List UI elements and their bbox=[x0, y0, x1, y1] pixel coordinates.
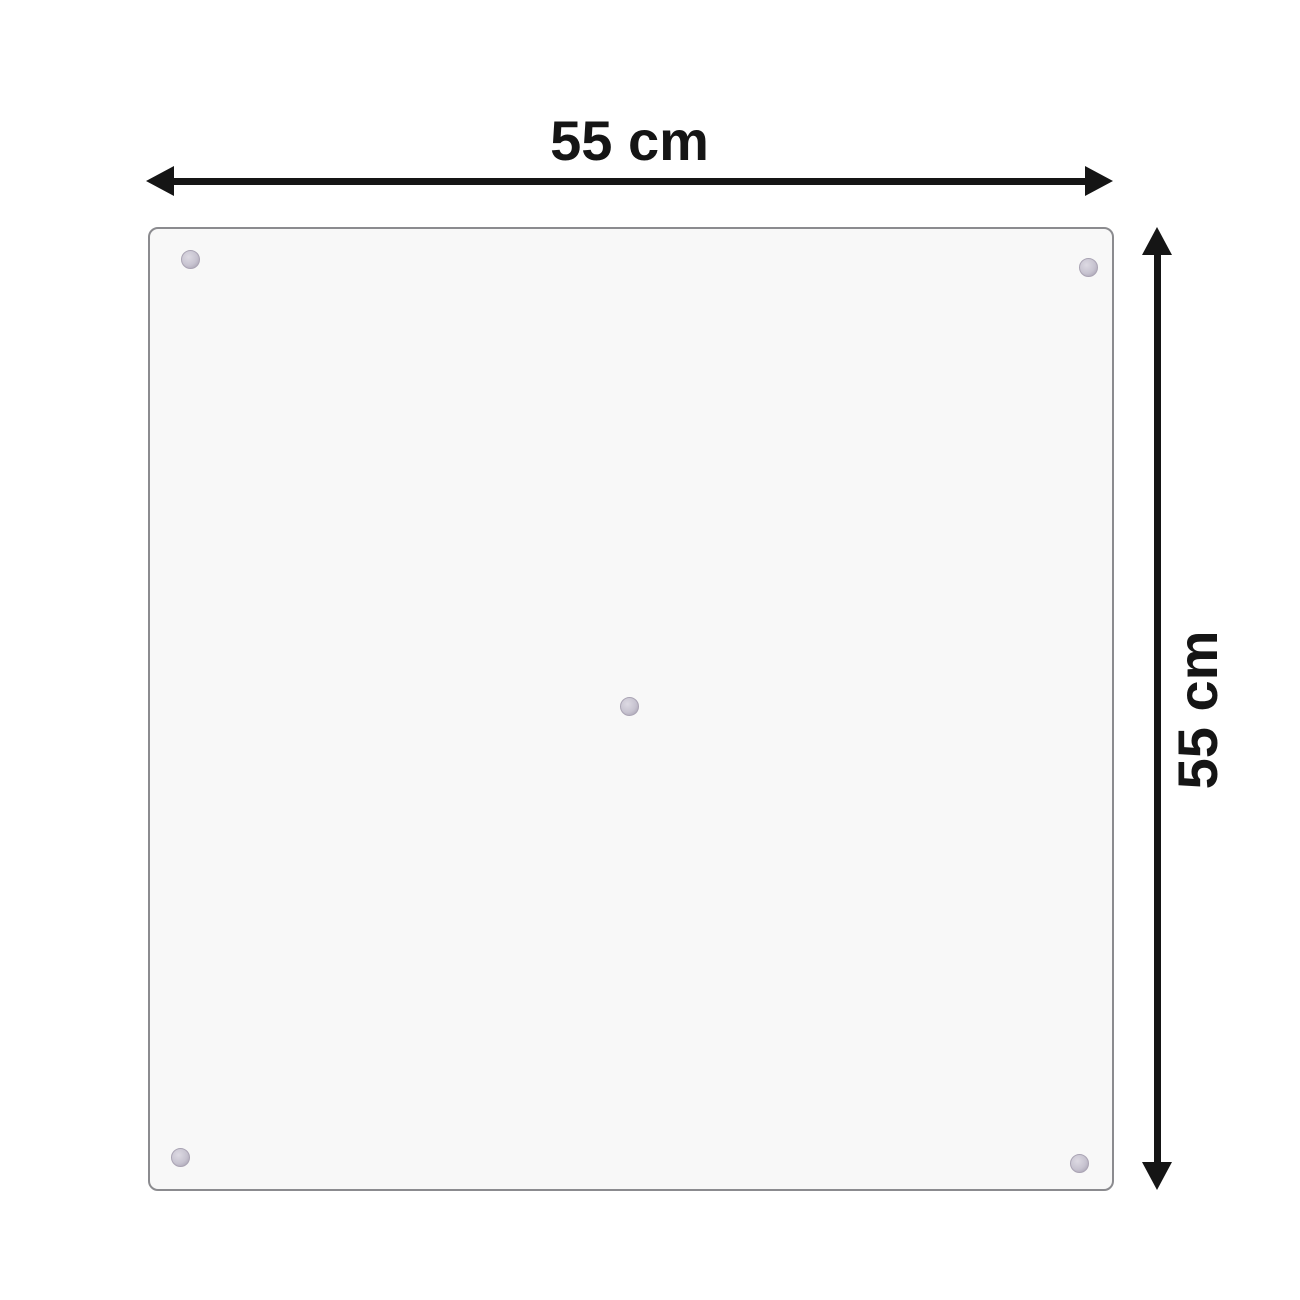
arrowhead-up-icon bbox=[1142, 227, 1172, 255]
dimension-diagram: 55 cm 55 cm bbox=[0, 0, 1300, 1300]
arrowhead-down-icon bbox=[1142, 1162, 1172, 1190]
suction-cup-top-right-icon bbox=[1079, 258, 1098, 277]
arrow-shaft bbox=[174, 178, 1085, 185]
height-dimension-label: 55 cm bbox=[1170, 510, 1228, 910]
suction-cup-bottom-left-icon bbox=[171, 1148, 190, 1167]
arrow-shaft bbox=[1154, 255, 1161, 1162]
suction-cup-top-left-icon bbox=[181, 250, 200, 269]
arrowhead-right-icon bbox=[1085, 166, 1113, 196]
arrowhead-left-icon bbox=[146, 166, 174, 196]
suction-cup-bottom-right-icon bbox=[1070, 1154, 1089, 1173]
glass-panel bbox=[148, 227, 1114, 1191]
suction-cup-center-icon bbox=[620, 697, 639, 716]
width-dimension-label: 55 cm bbox=[146, 113, 1113, 169]
width-dimension-arrow-icon bbox=[146, 166, 1113, 196]
